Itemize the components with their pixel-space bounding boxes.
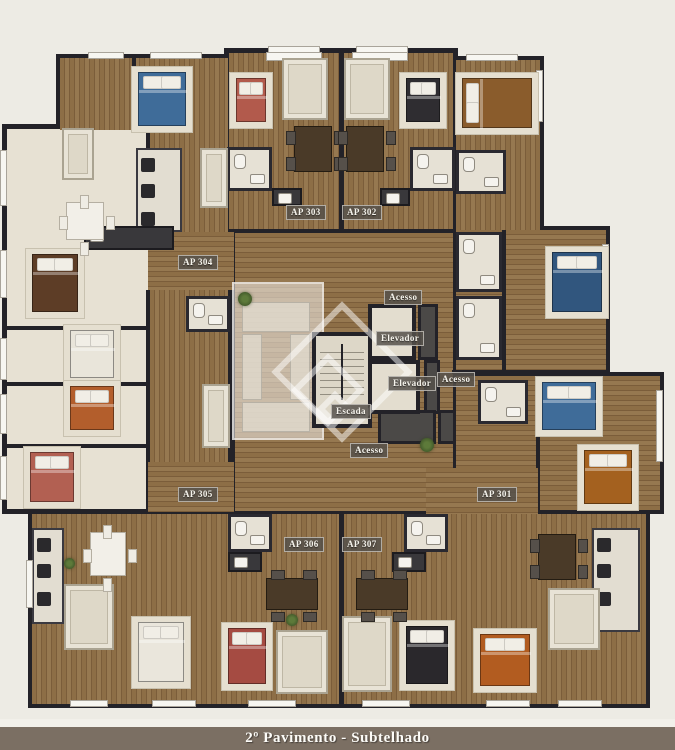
bed-fold [139,90,187,93]
caption-bar: 2º Pavimento - Subtelhado [0,727,675,750]
dining-table-white [66,202,104,240]
window [486,700,530,707]
bed-pillow [589,454,609,467]
ghost-sofa [242,302,310,332]
bed-fold [33,272,79,275]
bed-pillow [161,76,181,89]
label-ap-305: AP 305 [178,487,218,502]
kitchen-counter-dark [272,188,302,206]
kitchen-counter-dark [228,552,262,572]
window [0,394,7,434]
bathroom [456,150,506,194]
bed [480,634,530,686]
sofa-seat [70,590,108,644]
chair [271,570,285,580]
bathroom [410,147,455,191]
stove-burner [37,592,51,606]
sink-fixture [484,177,499,187]
bed-fold [480,79,483,129]
toilet-fixture [485,387,497,402]
chair [286,131,296,145]
kitchen-counter-dark [380,188,410,206]
chair [59,216,68,230]
bed-pillow [466,102,479,123]
bed-pillow [485,638,506,651]
sink-fixture [386,193,400,204]
chair [80,242,89,256]
bed-fold [237,96,267,99]
chair [578,539,588,553]
bed [70,330,114,378]
sofa-seat [288,64,322,114]
label-escada: Escada [331,404,371,419]
chair [106,216,115,230]
bed-pillow [426,630,444,643]
bed-fold [71,404,115,407]
bed [138,72,186,126]
dining-table [538,534,576,580]
chair [338,157,348,171]
label-ap-306: AP 306 [284,537,324,552]
window [0,338,7,380]
plant [286,614,298,626]
bed-fold [139,640,185,643]
toilet-fixture [463,157,475,172]
sink-fixture [234,557,248,568]
bed-fold [31,470,75,473]
chair [303,570,317,580]
bed-pillow [54,258,73,271]
chair [103,578,112,592]
bed-pillow [160,626,179,639]
stove-burner [141,184,155,198]
bed-fold [481,652,531,655]
chair [303,612,317,622]
dining-table [356,578,408,610]
bed-pillow [421,82,436,95]
label-acesso-top: Acesso [384,290,422,305]
bed-pillow [143,76,163,89]
bed [30,452,74,502]
bed-fold [407,644,449,647]
sofa-seat [282,636,322,688]
window [70,700,108,707]
sofa [344,58,390,120]
window [26,560,33,608]
label-ap-307: AP 307 [342,537,382,552]
stove-burner [141,158,155,172]
stove-burner [597,564,611,578]
chair [578,565,588,579]
chair [286,157,296,171]
label-elevador-lower: Elevador [388,376,436,391]
bathroom [186,296,230,332]
bed [228,628,266,684]
bed-pillow [557,256,578,269]
chair [393,570,407,580]
bathroom [456,296,502,360]
ghost-sofa [242,402,310,432]
sink-fixture [433,174,448,184]
kitchen-counter [32,528,64,624]
bed [462,78,532,128]
sink-fixture [250,535,265,545]
chair [361,570,375,580]
bed-pillow [568,386,591,399]
chair [103,525,112,539]
bed-pillow [576,256,597,269]
bed-pillow [607,454,627,467]
bed-pillow [50,456,69,469]
stove-burner [37,564,51,578]
stove-burner [141,212,155,226]
bed [236,78,266,122]
label-ap-302: AP 302 [342,205,382,220]
bed-pillow [250,82,263,95]
bed-fold [407,96,441,99]
bed-fold [543,400,597,403]
bed-fold [229,646,267,649]
label-acesso-bottom: Acesso [350,443,388,458]
window [0,456,7,500]
bathroom [456,232,502,292]
sofa [548,588,600,650]
bathroom [478,380,528,424]
sink-fixture [278,193,292,204]
toilet-fixture [235,521,247,536]
bed [542,382,596,430]
label-elevador-upper: Elevador [376,331,424,346]
dining-table [294,126,332,172]
sofa-seat [206,154,222,202]
chair [80,195,89,209]
sink-fixture [398,557,412,568]
bed-pillow [466,83,479,104]
plant [238,292,252,306]
bed-fold [553,270,603,273]
plant [420,438,434,452]
sink-fixture [480,343,495,353]
sofa [202,384,230,448]
window [466,54,518,61]
sink-fixture [480,275,495,285]
chair [361,612,375,622]
label-ap-304: AP 304 [178,255,218,270]
sofa [282,58,328,120]
toilet-fixture [417,154,429,169]
sofa [342,616,392,692]
window [362,700,410,707]
bed-pillow [504,638,525,651]
toilet-fixture [463,239,475,254]
chair [530,539,540,553]
chair [271,612,285,622]
stove-burner [597,538,611,552]
bed [32,254,78,312]
window [0,150,7,206]
dining-table [266,578,318,610]
sofa [62,128,94,180]
sofa-seat [208,390,224,442]
dining-table-white [90,532,126,576]
stove-burner [37,538,51,552]
plant [64,558,75,569]
sofa-seat [68,134,88,174]
sink-fixture [506,407,521,417]
bathroom [404,514,448,552]
sofa-seat [350,64,384,114]
service-shaft [438,410,456,444]
window [558,700,602,707]
window [0,250,7,298]
sofa [200,148,228,208]
bed [584,450,632,504]
bed-pillow [90,334,109,347]
chair [530,565,540,579]
sink-fixture [250,174,265,184]
toilet-fixture [234,154,246,169]
bathroom [227,147,272,191]
label-acesso-right: Acesso [437,372,475,387]
window [150,52,202,59]
window [152,700,196,707]
chair [128,549,137,563]
label-ap-303: AP 303 [286,205,326,220]
caption-text: 2º Pavimento - Subtelhado [245,730,430,747]
sofa [276,630,328,694]
toilet-fixture [411,521,423,536]
kitchen-counter-dark [392,552,426,572]
chair [386,157,396,171]
window [88,52,124,59]
sofa-seat [554,594,594,644]
bed [138,622,184,682]
bed [406,78,440,122]
floor-plan: AP 303AP 302AP 304AP 305AP 301AP 306AP 3… [0,0,675,750]
bed-pillow [547,386,570,399]
bed [406,626,448,684]
bed-pillow [246,632,262,645]
sink-fixture [426,535,441,545]
toilet-fixture [193,303,205,318]
window [656,390,663,462]
label-ap-301: AP 301 [477,487,517,502]
window [248,700,296,707]
chair [83,549,92,563]
sofa-seat [348,622,386,686]
dining-table [346,126,384,172]
toilet-fixture [463,303,475,318]
chair [393,612,407,622]
bed [70,386,114,430]
interior-wall [452,370,610,374]
ghost-sofa [242,334,262,400]
chair [338,131,348,145]
bed-fold [71,348,115,351]
chair [386,131,396,145]
bed-pillow [90,390,109,403]
interior-wall [502,230,506,374]
bed-fold [585,468,633,471]
bathroom [228,514,272,552]
bed [552,252,602,312]
sink-fixture [208,315,223,325]
sofa [64,584,114,650]
kitchen-counter [136,148,182,232]
